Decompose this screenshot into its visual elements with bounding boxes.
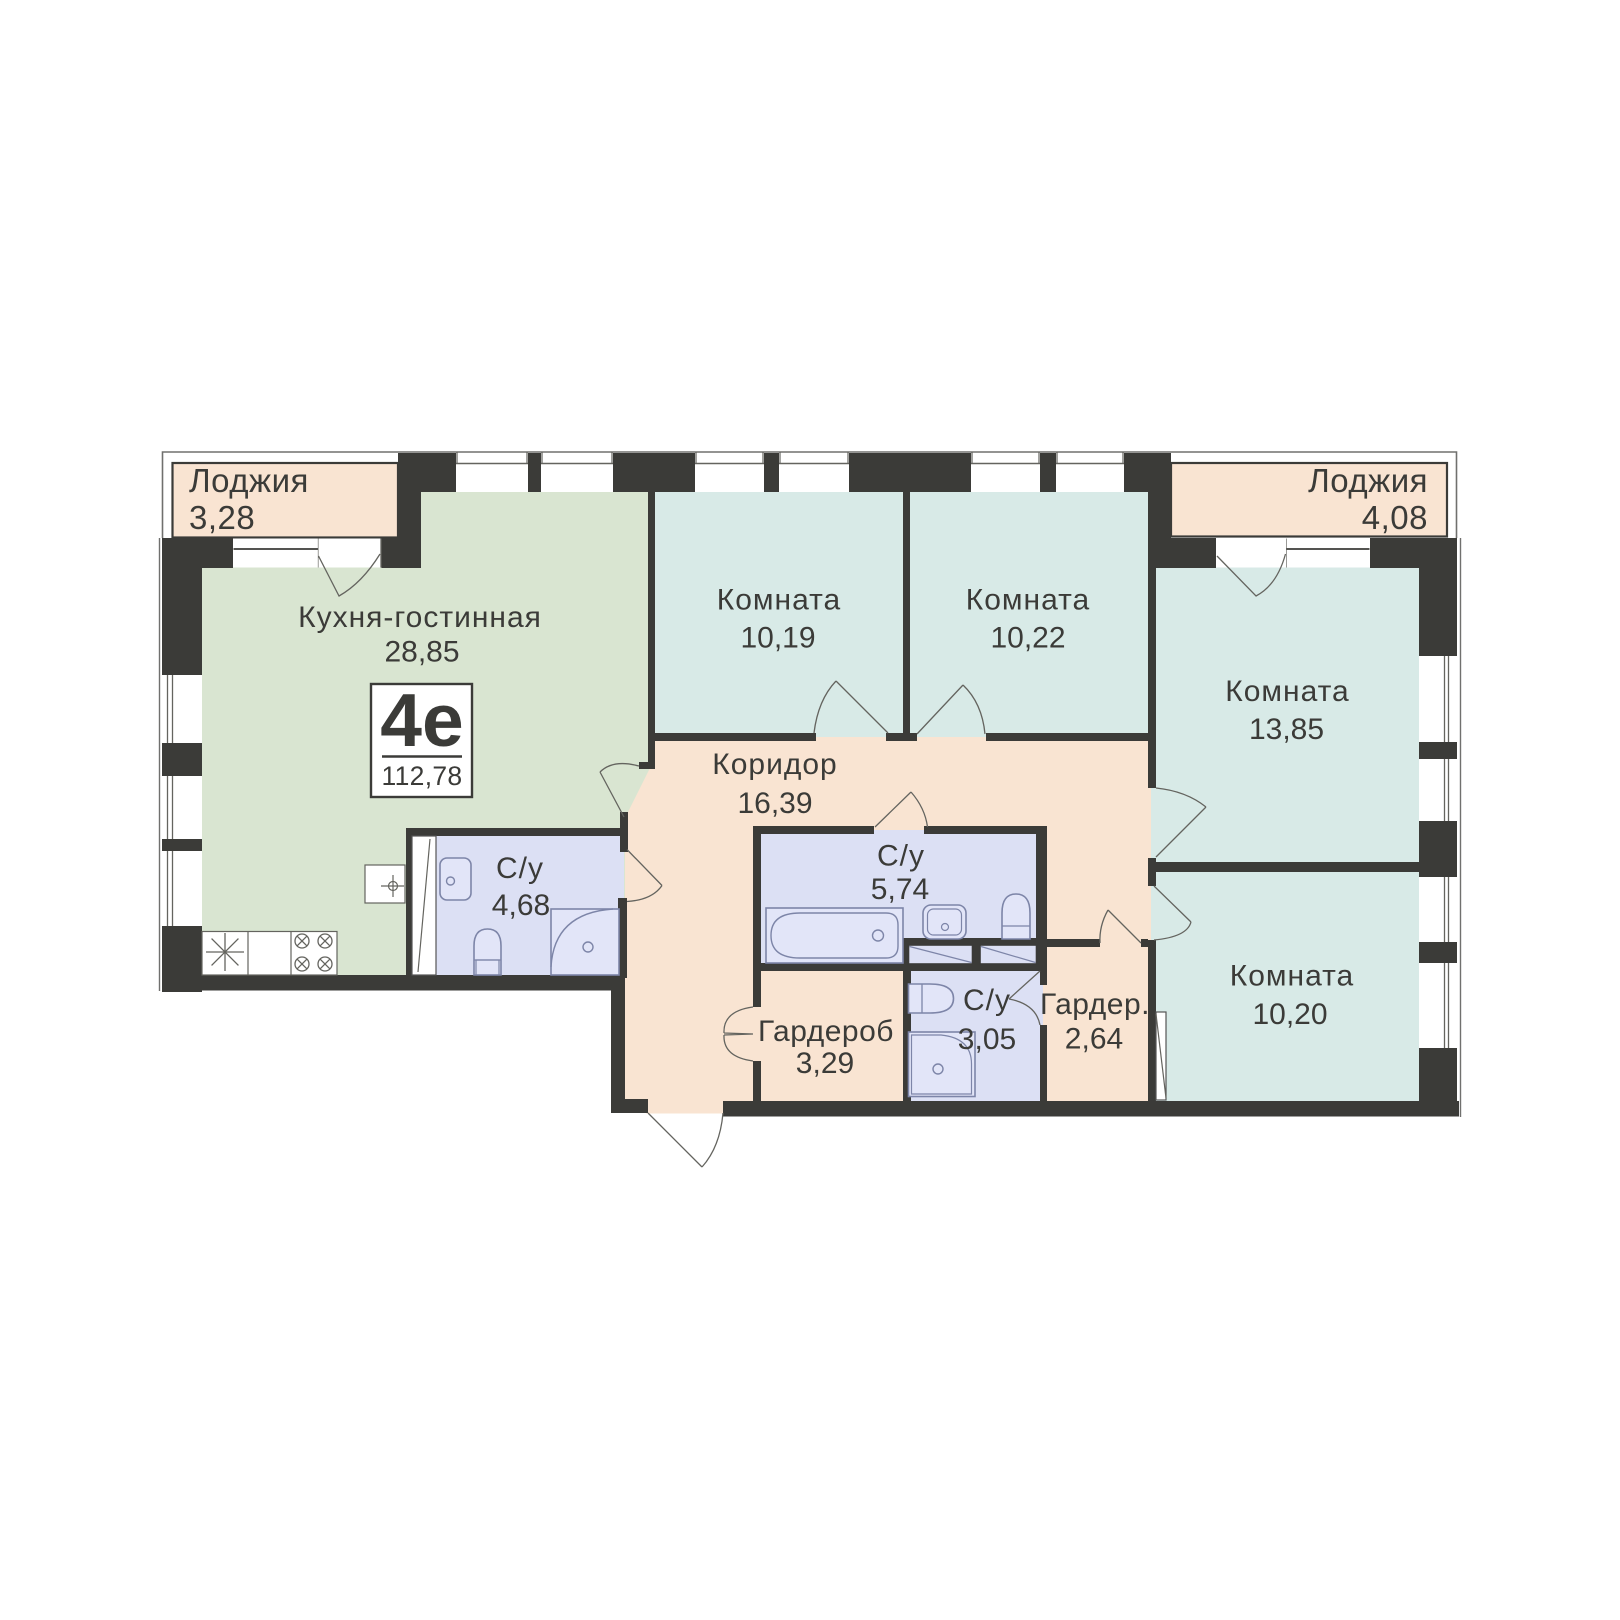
svg-text:Лоджия: Лоджия xyxy=(189,462,309,499)
svg-text:Гардероб: Гардероб xyxy=(758,1015,894,1048)
svg-text:10,22: 10,22 xyxy=(990,622,1065,655)
svg-text:4,68: 4,68 xyxy=(492,889,550,922)
svg-text:С/у: С/у xyxy=(496,852,544,885)
svg-text:3,28: 3,28 xyxy=(189,499,255,536)
svg-text:3,29: 3,29 xyxy=(796,1047,854,1080)
svg-text:3,05: 3,05 xyxy=(958,1023,1016,1056)
svg-text:13,85: 13,85 xyxy=(1249,713,1324,746)
svg-text:4,08: 4,08 xyxy=(1362,499,1428,536)
svg-text:С/у: С/у xyxy=(963,984,1011,1017)
svg-text:112,78: 112,78 xyxy=(382,761,463,791)
svg-text:Комната: Комната xyxy=(1230,960,1354,993)
svg-text:Комната: Комната xyxy=(1225,675,1349,708)
svg-text:Лоджия: Лоджия xyxy=(1308,462,1428,499)
svg-text:С/у: С/у xyxy=(877,840,925,873)
svg-text:Кухня-гостинная: Кухня-гостинная xyxy=(298,601,542,634)
svg-text:10,19: 10,19 xyxy=(740,622,815,655)
svg-text:Комната: Комната xyxy=(966,584,1090,617)
svg-text:Комната: Комната xyxy=(717,584,841,617)
svg-text:2,64: 2,64 xyxy=(1065,1023,1123,1056)
svg-text:10,20: 10,20 xyxy=(1252,998,1327,1031)
svg-text:28,85: 28,85 xyxy=(384,636,459,669)
svg-text:16,39: 16,39 xyxy=(737,787,812,820)
svg-text:5,74: 5,74 xyxy=(871,873,929,906)
svg-text:4е: 4е xyxy=(380,678,463,762)
svg-text:Коридор: Коридор xyxy=(712,748,837,781)
svg-text:Гардер.: Гардер. xyxy=(1040,988,1150,1021)
